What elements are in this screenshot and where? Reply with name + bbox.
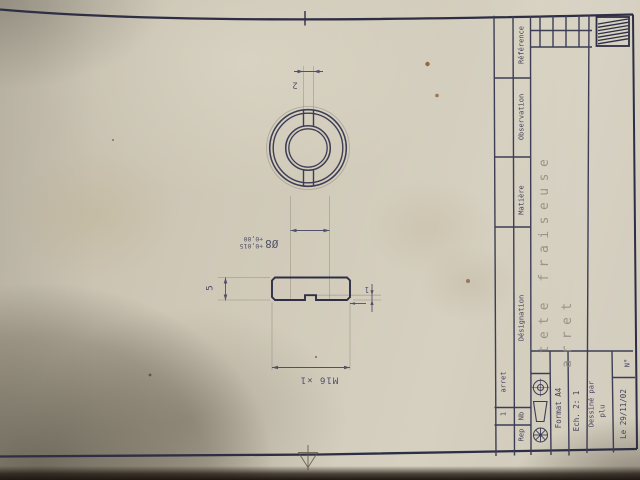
part-title-line1: tete fraiseuse: [538, 153, 552, 354]
slot-lines: [304, 110, 314, 187]
header-rep: Rep: [518, 429, 525, 442]
item-quantity: 1: [500, 412, 507, 416]
scale-label: Ech. 2: 1: [573, 391, 581, 432]
gear-icon: [534, 428, 548, 442]
title-block-grid: [494, 15, 635, 456]
paper-specks: [112, 62, 470, 377]
drawn-by-label: Dessiné par: [588, 381, 595, 427]
side-view-outline: [272, 278, 350, 301]
number-label: N°: [624, 359, 631, 367]
construction-lines: [218, 66, 381, 370]
dimension-bore: Ø8 +0,015 +0,00: [240, 235, 279, 249]
date-label: Le 29/11/02: [620, 389, 628, 439]
cone-frustum-icon: [534, 402, 548, 422]
item-designation: arret: [500, 371, 507, 392]
dimension-slot-depth: 1: [365, 285, 370, 293]
drawing-photo: 2 Ø8 +0,015 +0,00 5 M16 ×1 1 Référence O…: [0, 0, 640, 480]
header-observation: Observation: [518, 94, 525, 140]
dimension-thread: M16 ×1: [300, 374, 339, 383]
header-nb: Nb: [518, 412, 525, 420]
table-edge: [0, 466, 640, 480]
part-title-line2: arret: [561, 296, 575, 368]
top-view-ring: [270, 110, 347, 187]
header-reference: Référence: [518, 26, 525, 64]
bore-tolerances: +0,015 +0,00: [240, 235, 263, 249]
bore-tol-upper: +0,015: [240, 242, 263, 249]
drawn-by-value: plu: [599, 405, 606, 418]
header-designation: Désignation: [518, 295, 525, 341]
hatched-logo-icon: [597, 17, 630, 46]
projection-target-icon: [532, 379, 550, 397]
dimension-slot-width: 2: [292, 79, 297, 88]
bore-diameter-text: Ø8: [265, 237, 278, 249]
format-label: Format A4: [555, 388, 563, 429]
header-matiere: Matière: [518, 185, 525, 215]
bore-tol-lower: +0,00: [240, 235, 263, 242]
dimension-thickness: 5: [206, 285, 215, 290]
